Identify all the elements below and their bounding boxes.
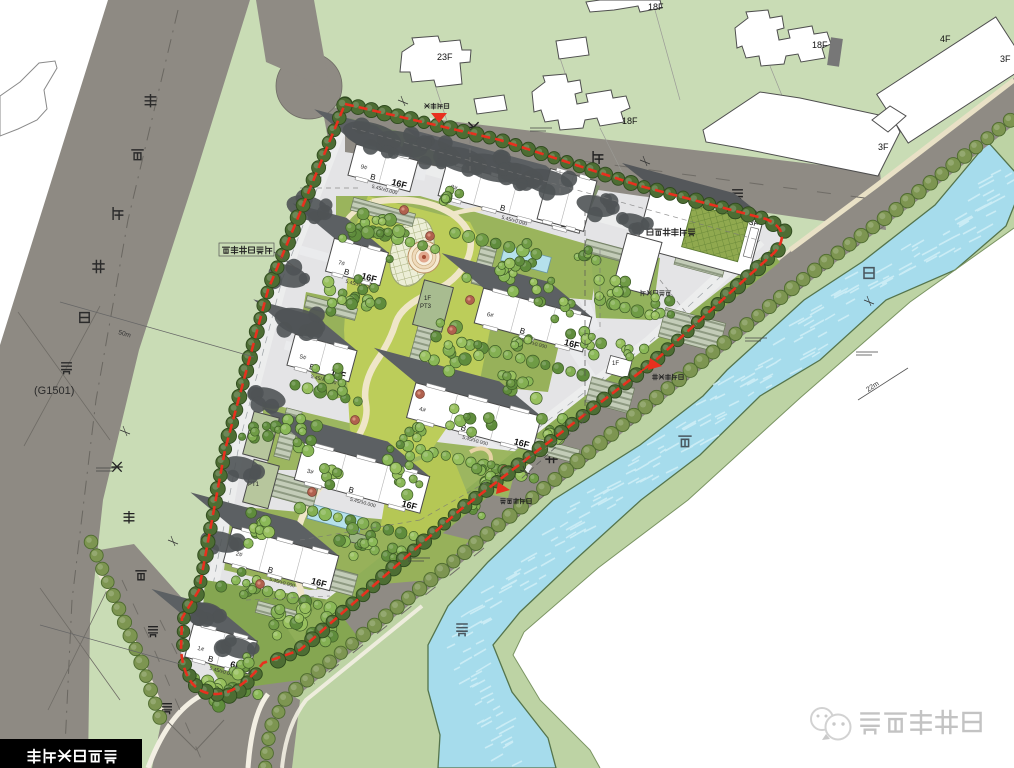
svg-text:PT3: PT3	[420, 304, 432, 310]
svg-text:18F: 18F	[622, 116, 638, 126]
svg-text:1F: 1F	[612, 361, 619, 367]
svg-text:4F: 4F	[940, 34, 951, 44]
svg-text:18F: 18F	[812, 40, 828, 50]
svg-text:3F: 3F	[878, 142, 889, 152]
svg-text:23F: 23F	[437, 52, 453, 62]
svg-text:18F: 18F	[648, 2, 664, 12]
svg-text:1F: 1F	[424, 296, 431, 302]
svg-text:(G1501): (G1501)	[34, 385, 74, 397]
svg-text:3F: 3F	[1000, 54, 1011, 64]
